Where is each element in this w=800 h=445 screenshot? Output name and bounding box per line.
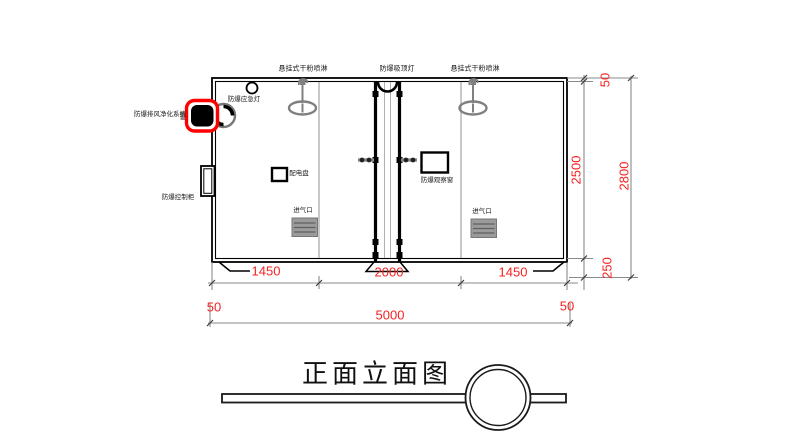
emergency-lamp-label: 防爆应急灯 bbox=[228, 97, 261, 104]
dim-bottom-left-bay: 1450 bbox=[252, 265, 281, 278]
dim-right-inner-height: 2500 bbox=[570, 156, 583, 185]
control-cabinet-icon bbox=[201, 166, 215, 196]
exhaust-system-label: 防爆排风净化系统 bbox=[134, 112, 186, 119]
sprinkler-right-label: 悬挂式干粉喷淋 bbox=[451, 66, 500, 73]
observation-window-icon bbox=[422, 153, 449, 173]
elevation-drawing-canvas: 悬挂式干粉喷淋 防爆吸顶灯 悬挂式干粉喷淋 防爆应急灯 防爆排风净化系统 防爆控… bbox=[0, 0, 800, 445]
control-cabinet-label: 防爆控制柜 bbox=[162, 195, 195, 202]
power-panel-icon bbox=[272, 168, 287, 181]
exhaust-fan-icon bbox=[181, 101, 236, 132]
dim-right-top: 50 bbox=[599, 73, 612, 87]
dim-bottom-right-bay: 1450 bbox=[499, 266, 528, 279]
dim-bottom-right-wall: 50 bbox=[560, 300, 574, 313]
power-panel-label: 配电盘 bbox=[289, 171, 309, 178]
emergency-lamp-icon bbox=[247, 83, 258, 94]
air-inlet-right-icon bbox=[471, 219, 497, 238]
air-inlet-left-icon bbox=[292, 218, 318, 237]
dim-right-total-height: 2800 bbox=[618, 162, 631, 191]
dim-right-base: 250 bbox=[601, 257, 614, 279]
air-inlet-left-label: 进气口 bbox=[293, 208, 313, 215]
dim-bottom-total-width: 5000 bbox=[376, 309, 405, 322]
ceiling-lamp-label: 防爆吸顶灯 bbox=[380, 66, 415, 73]
drawing-title: 正面立面图 bbox=[302, 354, 452, 391]
air-inlet-right-label: 进气口 bbox=[472, 209, 492, 216]
observation-window-label: 防爆观察窗 bbox=[421, 178, 454, 185]
container-outline bbox=[212, 78, 567, 262]
dim-bottom-center-bay: 2000 bbox=[375, 266, 404, 279]
dim-bottom-left-wall: 50 bbox=[207, 301, 221, 314]
sprinkler-left-label: 悬挂式干粉喷淋 bbox=[279, 66, 328, 73]
